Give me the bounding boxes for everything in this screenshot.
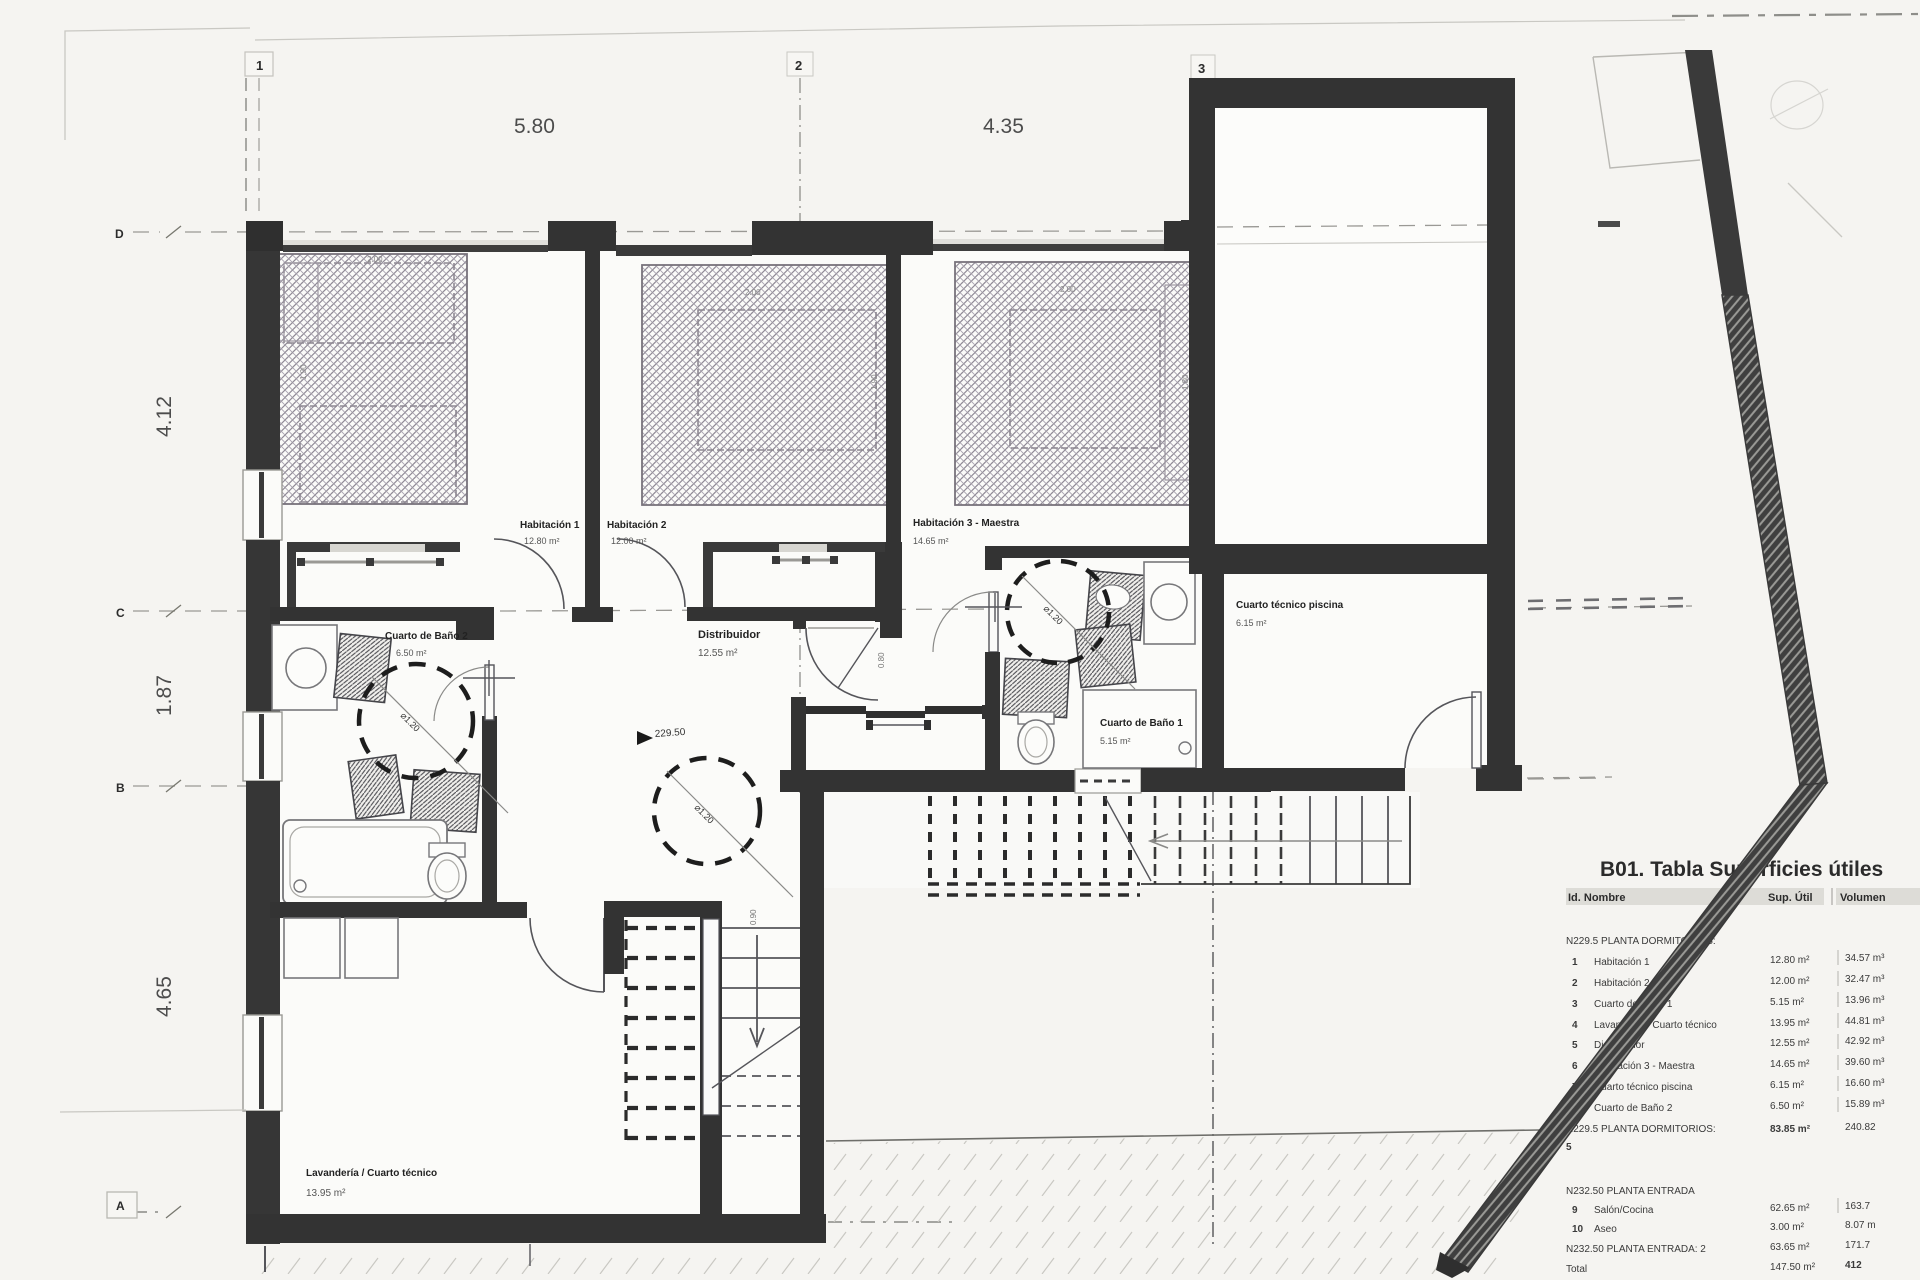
svg-text:Total: Total bbox=[1566, 1264, 1587, 1275]
svg-text:1: 1 bbox=[1572, 957, 1578, 968]
svg-text:6.50 m²: 6.50 m² bbox=[396, 648, 427, 658]
svg-text:4.12: 4.12 bbox=[153, 396, 176, 437]
svg-text:A: A bbox=[116, 1199, 125, 1213]
svg-text:6.15 m²: 6.15 m² bbox=[1236, 618, 1267, 628]
svg-text:4.65: 4.65 bbox=[153, 976, 176, 1017]
svg-text:Lavandería / Cuarto técnico: Lavandería / Cuarto técnico bbox=[306, 1168, 437, 1179]
svg-text:2.00: 2.00 bbox=[1060, 285, 1076, 294]
svg-text:12.00 m²: 12.00 m² bbox=[1770, 976, 1810, 987]
svg-text:8.07 m: 8.07 m bbox=[1845, 1220, 1876, 1231]
svg-text:Cuarto de Baño 2: Cuarto de Baño 2 bbox=[1594, 1103, 1673, 1114]
svg-text:229.50: 229.50 bbox=[654, 727, 686, 740]
svg-text:0.90: 0.90 bbox=[749, 909, 758, 925]
svg-text:39.60 m³: 39.60 m³ bbox=[1845, 1057, 1885, 1068]
svg-text:15.89 m³: 15.89 m³ bbox=[1845, 1099, 1885, 1110]
svg-text:9: 9 bbox=[1572, 1205, 1578, 1216]
svg-text:2.00: 2.00 bbox=[745, 288, 761, 297]
svg-text:1.87: 1.87 bbox=[153, 675, 176, 716]
svg-text:12.55 m²: 12.55 m² bbox=[1770, 1038, 1810, 1049]
svg-text:Cuarto de Baño 2: Cuarto de Baño 2 bbox=[385, 631, 468, 642]
svg-text:Habitación 1: Habitación 1 bbox=[520, 520, 580, 531]
svg-text:N232.50 PLANTA ENTRADA: 2: N232.50 PLANTA ENTRADA: 2 bbox=[1566, 1244, 1706, 1255]
svg-text:C: C bbox=[116, 606, 125, 620]
svg-text:Habitación 1: Habitación 1 bbox=[1594, 957, 1650, 968]
svg-text:Cuarto técnico piscina: Cuarto técnico piscina bbox=[1594, 1082, 1693, 1093]
svg-text:Lavandería / Cuarto técnico: Lavandería / Cuarto técnico bbox=[1594, 1020, 1717, 1031]
svg-text:34.57 m³: 34.57 m³ bbox=[1845, 953, 1885, 964]
svg-text:147.50 m²: 147.50 m² bbox=[1770, 1262, 1816, 1273]
svg-text:4: 4 bbox=[1572, 1020, 1578, 1031]
svg-text:Aseo: Aseo bbox=[1594, 1224, 1617, 1235]
svg-text:163.7: 163.7 bbox=[1845, 1201, 1870, 1212]
svg-text:1.90: 1.90 bbox=[870, 374, 879, 390]
svg-text:3.00 m²: 3.00 m² bbox=[1770, 1222, 1805, 1233]
svg-text:5: 5 bbox=[1566, 1142, 1572, 1153]
svg-text:B: B bbox=[116, 781, 125, 795]
svg-text:5: 5 bbox=[1572, 1040, 1578, 1051]
svg-text:42.92 m³: 42.92 m³ bbox=[1845, 1036, 1885, 1047]
svg-text:5.15 m²: 5.15 m² bbox=[1770, 997, 1805, 1008]
svg-text:1.90: 1.90 bbox=[299, 364, 308, 380]
svg-text:10: 10 bbox=[1572, 1224, 1584, 1235]
svg-text:3: 3 bbox=[1572, 999, 1578, 1010]
svg-text:Sup. Útil: Sup. Útil bbox=[1768, 891, 1813, 904]
svg-text:N229.5 PLANTA DORMITORIOS:: N229.5 PLANTA DORMITORIOS: bbox=[1566, 1124, 1716, 1135]
svg-text:2.00: 2.00 bbox=[367, 255, 383, 264]
svg-text:171.7: 171.7 bbox=[1845, 1240, 1870, 1251]
svg-text:6.50 m²: 6.50 m² bbox=[1770, 1101, 1805, 1112]
svg-text:12.80 m²: 12.80 m² bbox=[524, 536, 560, 546]
svg-text:12.80 m²: 12.80 m² bbox=[1770, 955, 1810, 966]
svg-text:3: 3 bbox=[1198, 61, 1205, 76]
svg-text:32.47 m³: 32.47 m³ bbox=[1845, 974, 1885, 985]
svg-text:5.15 m²: 5.15 m² bbox=[1100, 736, 1131, 746]
svg-text:5.80: 5.80 bbox=[514, 115, 555, 138]
svg-text:2: 2 bbox=[795, 58, 802, 73]
svg-text:13.96 m³: 13.96 m³ bbox=[1845, 995, 1885, 1006]
svg-text:63.65 m²: 63.65 m² bbox=[1770, 1242, 1810, 1253]
svg-text:16.60 m³: 16.60 m³ bbox=[1845, 1078, 1885, 1089]
svg-text:0.80: 0.80 bbox=[877, 652, 886, 668]
svg-text:4.35: 4.35 bbox=[983, 115, 1024, 138]
svg-text:Salón/Cocina: Salón/Cocina bbox=[1594, 1205, 1654, 1216]
svg-text:240.82: 240.82 bbox=[1845, 1122, 1876, 1133]
svg-text:Id. Nombre: Id. Nombre bbox=[1568, 892, 1625, 904]
svg-text:12.55 m²: 12.55 m² bbox=[698, 648, 738, 659]
svg-text:412: 412 bbox=[1845, 1260, 1862, 1271]
svg-text:Habitación 2: Habitación 2 bbox=[607, 520, 667, 531]
svg-text:1: 1 bbox=[256, 58, 263, 73]
svg-text:1.80: 1.80 bbox=[1181, 374, 1190, 390]
svg-text:44.81 m³: 44.81 m³ bbox=[1845, 1016, 1885, 1027]
svg-text:62.65 m²: 62.65 m² bbox=[1770, 1203, 1810, 1214]
svg-text:13.95 m²: 13.95 m² bbox=[306, 1188, 346, 1199]
svg-text:14.65 m²: 14.65 m² bbox=[913, 536, 949, 546]
svg-text:D: D bbox=[115, 227, 124, 241]
svg-text:Habitación 2: Habitación 2 bbox=[1594, 978, 1650, 989]
svg-text:Cuarto técnico piscina: Cuarto técnico piscina bbox=[1236, 600, 1344, 611]
svg-text:6.15 m²: 6.15 m² bbox=[1770, 1080, 1805, 1091]
svg-text:83.85 m²: 83.85 m² bbox=[1770, 1124, 1811, 1135]
svg-text:13.95 m²: 13.95 m² bbox=[1770, 1018, 1810, 1029]
svg-text:Habitación 3 - Maestra: Habitación 3 - Maestra bbox=[913, 518, 1020, 529]
svg-text:12.00 m²: 12.00 m² bbox=[611, 536, 647, 546]
svg-text:6: 6 bbox=[1572, 1061, 1578, 1072]
svg-text:Distribuidor: Distribuidor bbox=[698, 629, 761, 641]
svg-text:2: 2 bbox=[1572, 978, 1578, 989]
svg-text:14.65 m²: 14.65 m² bbox=[1770, 1059, 1810, 1070]
svg-text:N232.50 PLANTA ENTRADA: N232.50 PLANTA ENTRADA bbox=[1566, 1186, 1695, 1197]
svg-text:Cuarto de Baño 1: Cuarto de Baño 1 bbox=[1100, 718, 1183, 729]
svg-text:Volumen: Volumen bbox=[1840, 892, 1886, 904]
